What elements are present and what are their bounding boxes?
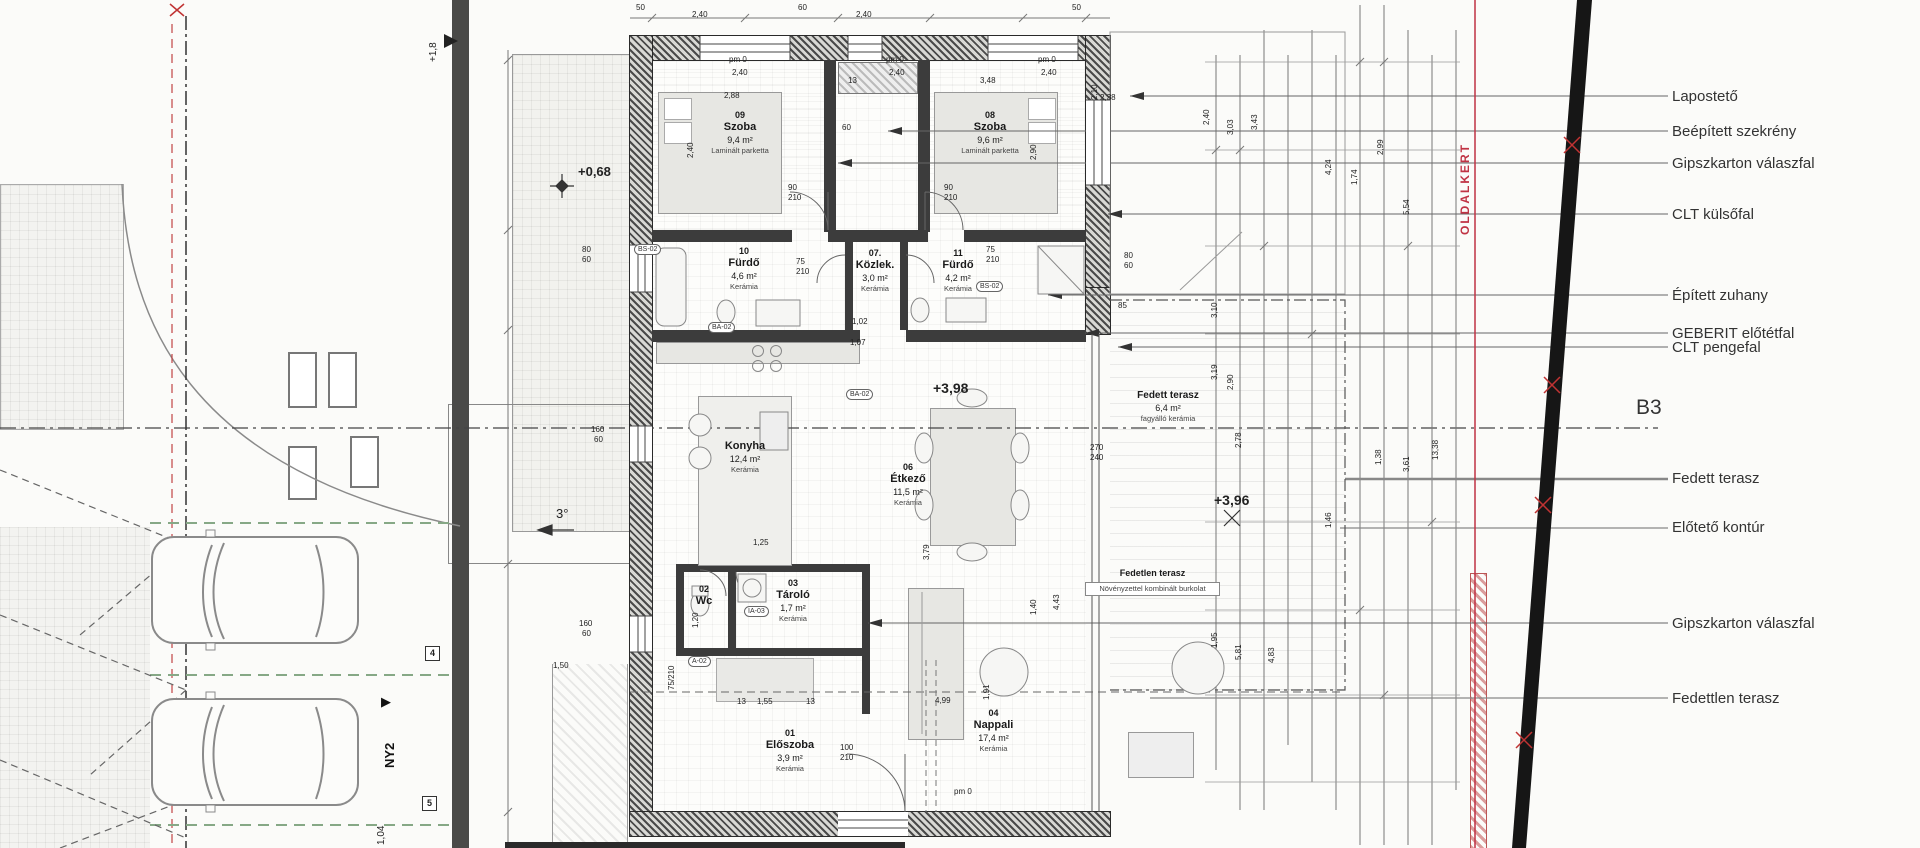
room-label-kozlek: 07. Közlek. 3,0 m² Kerámia <box>846 248 904 294</box>
opening-tag: BA-02 <box>846 389 873 400</box>
room-label-fedett-terasz: Fedett terasz 6,4 m² fagyálló kerámia <box>1108 390 1228 423</box>
legend-fedett-terasz: Fedett terasz <box>1672 470 1760 487</box>
dim-label: 210 <box>840 754 853 762</box>
dim-label: 2,40 <box>692 11 708 19</box>
legend-clt-kulsofal: CLT külsőfal <box>1672 206 1754 223</box>
dim-label: 1,91 <box>983 684 991 700</box>
legend-gipszkarton-2: Gipszkarton válaszfal <box>1672 615 1815 632</box>
sill-tag: 2,40 <box>889 69 905 77</box>
legend-fedettlen-terasz: Fedettlen terasz <box>1672 690 1780 707</box>
dim-label: 5,54 <box>1403 199 1411 215</box>
dim-label: 210 <box>944 194 957 202</box>
dim-label: 80 <box>1124 252 1133 260</box>
level-garden: +0,68 <box>578 164 611 179</box>
dim-label: 240 <box>1090 454 1103 462</box>
dim-label: 50 <box>1072 4 1081 12</box>
dim-label: 4,43 <box>1053 594 1061 610</box>
opening-tag: BA-02 <box>708 322 735 333</box>
legend-lapasteto: Lapostető <box>1672 88 1738 105</box>
fence-length-label: 1,04 <box>376 826 387 845</box>
room-label-nappali: 04 Nappali 17,4 m² Kerámia <box>946 708 1041 754</box>
dim-label: 90 <box>788 184 797 192</box>
room-label-eloszoba: 01 Előszoba 3,9 m² Kerámia <box>744 728 836 774</box>
dim-label: 210 <box>986 256 999 264</box>
dim-label: 60 <box>582 630 591 638</box>
dim-label: 50 <box>636 4 645 12</box>
dim-label: 5,81 <box>1235 644 1243 660</box>
sill-tag: 2,40 <box>732 69 748 77</box>
dim-label: 2,99 <box>1377 139 1385 155</box>
dim-label: 2,90 <box>1227 374 1235 390</box>
room-label-szoba08: 08 Szoba 9,6 m² Laminált parketta <box>940 110 1040 156</box>
dim-label: 3,61 <box>1403 456 1411 472</box>
slope-arrow <box>538 525 574 535</box>
dim-label: 1,25 <box>753 539 769 547</box>
dim-label: 3,10 <box>1211 302 1219 318</box>
fence-height-label: +1,8 <box>428 42 439 62</box>
dim-label: 1,74 <box>1351 169 1359 185</box>
red-break-marks <box>170 4 1580 748</box>
legend-clt-pengefal: CLT pengefal <box>1672 339 1761 356</box>
dim-label: 3,48 <box>980 77 996 85</box>
dim-label: 4,24 <box>1325 159 1333 175</box>
level-floor: +3,98 <box>933 380 968 396</box>
dim-label: 75 <box>796 258 805 266</box>
car-2 <box>152 692 358 812</box>
dim-label: 1,55 <box>757 698 773 706</box>
dim-label: 4,83 <box>1268 647 1276 663</box>
ny2-label: NY2 <box>382 743 397 768</box>
dim-label: 2,90 <box>1030 144 1038 160</box>
dim-label: 210 <box>788 194 801 202</box>
dim-label: 4,99 <box>935 697 951 705</box>
dim-label: 85 <box>1118 302 1127 310</box>
dim-label: 160 <box>591 426 604 434</box>
slope-label: 3° <box>556 506 568 521</box>
sill-tag: 2,40 <box>1041 69 1057 77</box>
dim-label: 100 <box>840 744 853 752</box>
sill-tag: pm 0 <box>886 56 904 64</box>
dim-label: 3,43 <box>1251 114 1259 130</box>
dim-label: 60 <box>842 124 851 132</box>
dim-label: 75 <box>986 246 995 254</box>
dim-label: 1,07 <box>850 339 866 347</box>
dim-label: 90 <box>944 184 953 192</box>
legend-beepitett-szekreny: Beépített szekrény <box>1672 123 1796 140</box>
dim-label: 13 <box>806 698 815 706</box>
road-edge-curve <box>122 184 460 526</box>
room-label-konyha: Konyha 12,4 m² Kerámia <box>698 440 792 474</box>
dim-label: 60 <box>798 4 807 12</box>
dim-label: 60 <box>594 436 603 444</box>
opening-tag: A-02 <box>688 656 711 667</box>
dim-label: 13 <box>737 698 746 706</box>
opening-tag: BS-02 <box>634 244 661 255</box>
legend-epitett-zuhany: Épített zuhany <box>1672 287 1768 304</box>
level-terrace: +3,96 <box>1214 492 1249 508</box>
car-1 <box>152 530 358 650</box>
dim-label: 2,88 <box>724 92 740 100</box>
room-label-furdo10: 10 Fürdő 4,6 m² Kerámia <box>712 246 776 292</box>
dim-label: 160 <box>579 620 592 628</box>
legend-eloteto-kontur: Előtető kontúr <box>1672 519 1765 536</box>
opening-tag: BS-02 <box>976 281 1003 292</box>
room-label-wc: 02 Wc <box>682 584 726 609</box>
plot-boundary-thick-line <box>1512 0 1592 848</box>
room-label-etkezo: 06 Étkező 11,5 m² Kerámia <box>868 462 948 508</box>
dim-label: 1,46 <box>1325 512 1333 528</box>
dim-label: 2,40 <box>856 11 872 19</box>
floorplan-drawing: 4 5 <box>0 0 1920 848</box>
dim-label: 1,38 <box>1375 449 1383 465</box>
dim-label: 2,40 <box>687 142 695 158</box>
dim-label: 2,78 <box>1235 432 1243 448</box>
ny2-arrow: ▶ <box>381 694 391 710</box>
opening-tag: IA-03 <box>744 606 769 617</box>
dim-label: 13,38 <box>1432 440 1440 460</box>
section-mark-b3: B3 <box>1636 396 1662 420</box>
oldalkert-label: OLDALKERT <box>1458 143 1472 235</box>
sill-tag: pm 0 <box>1038 56 1056 64</box>
dim-label: 75/210 <box>668 666 676 690</box>
dim-label: 1,50 <box>553 662 569 670</box>
dim-label: 3,19 <box>1211 364 1219 380</box>
plasterboard-partition-dashed <box>926 660 936 812</box>
sill-tag: pm 0 <box>729 56 747 64</box>
dim-label: 2,38 <box>1100 94 1116 102</box>
legend-gipszkarton-1: Gipszkarton válaszfal <box>1672 155 1815 172</box>
dim-label: 3,03 <box>1227 119 1235 135</box>
dim-label: 270 <box>1090 444 1103 452</box>
dim-label: 1,95 <box>1211 632 1219 648</box>
dim-label: 60 <box>582 256 591 264</box>
dim-label: 80 <box>582 246 591 254</box>
sill-tag: pm 0 <box>954 788 972 796</box>
room-label-fedetlen-terasz: Fedetlen terasz Növényzettel kombinált b… <box>1085 568 1220 596</box>
fence-arrow <box>444 34 458 48</box>
dim-label: 2,10 <box>1091 84 1099 100</box>
dim-label: 1,02 <box>852 318 868 326</box>
room-label-szoba09: 09 Szoba 9,4 m² Laminált parketta <box>690 110 790 156</box>
dim-label: 1,40 <box>1030 599 1038 615</box>
dim-label: 13 <box>848 77 857 85</box>
dim-label: 1,20 <box>692 612 700 628</box>
dim-label: 3,79 <box>923 544 931 560</box>
dim-label: 2,40 <box>1203 109 1211 125</box>
dim-label: 210 <box>796 268 809 276</box>
dim-label: 60 <box>1124 262 1133 270</box>
